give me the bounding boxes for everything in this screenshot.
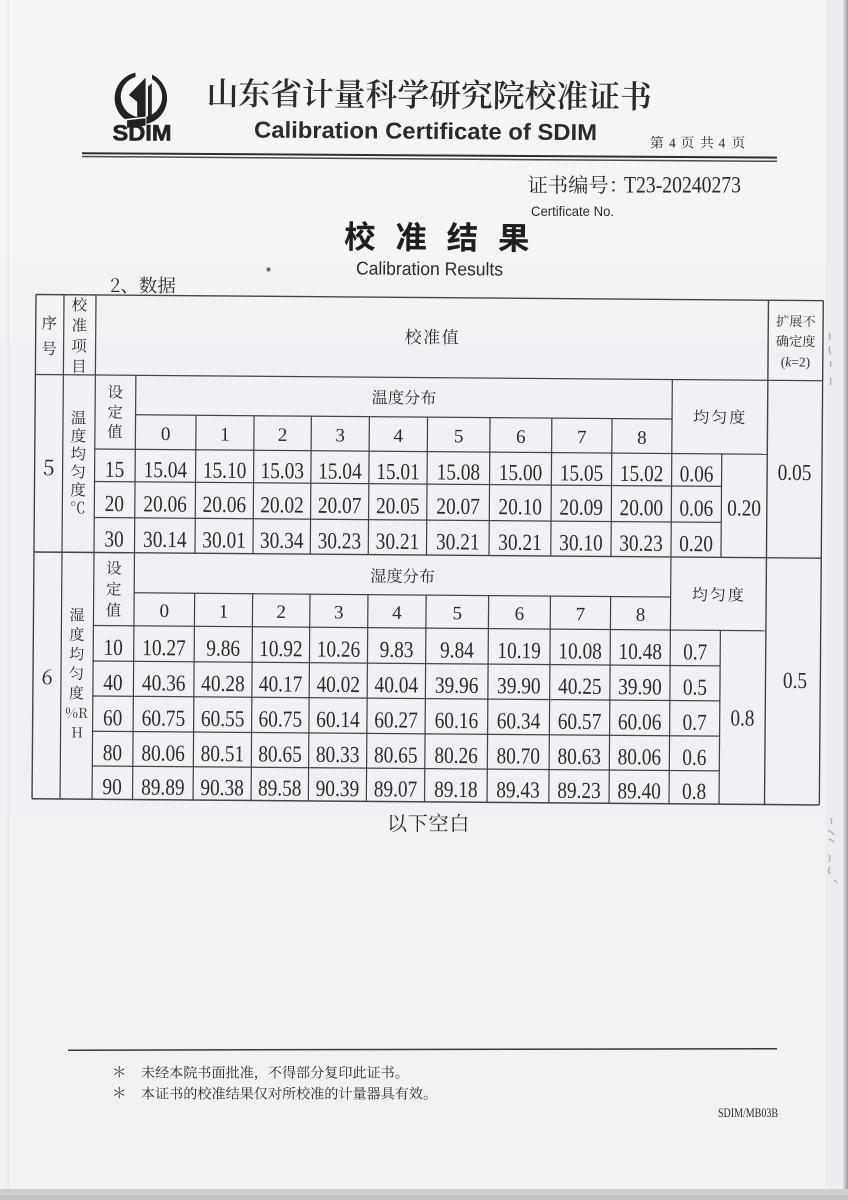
svg-text:60: 60 xyxy=(103,705,122,730)
svg-text:80.63: 80.63 xyxy=(557,744,601,769)
svg-text:0.6: 0.6 xyxy=(682,745,706,770)
svg-text:3: 3 xyxy=(334,602,344,623)
svg-text:30.23: 30.23 xyxy=(318,528,362,553)
svg-text:9.86: 9.86 xyxy=(206,636,240,661)
svg-text:0.7: 0.7 xyxy=(683,710,707,735)
svg-text:20: 20 xyxy=(105,491,124,516)
svg-text:1: 1 xyxy=(219,601,229,622)
svg-text:20.09: 20.09 xyxy=(559,495,603,520)
svg-text:SDIM: SDIM xyxy=(113,121,172,146)
svg-text:89.89: 89.89 xyxy=(141,774,185,799)
svg-text:10.26: 10.26 xyxy=(317,636,361,661)
svg-text:4: 4 xyxy=(393,426,403,447)
svg-text:60.14: 60.14 xyxy=(316,707,360,732)
svg-text:30.21: 30.21 xyxy=(436,529,480,554)
svg-text:Certificate No.: Certificate No. xyxy=(531,204,614,219)
svg-text:30.14: 30.14 xyxy=(143,527,187,552)
svg-text:15.02: 15.02 xyxy=(620,461,664,486)
svg-text:8: 8 xyxy=(636,605,646,626)
svg-text:Calibration Certificate of SDI: Calibration Certificate of SDIM xyxy=(254,117,597,146)
svg-text:Calibration Results: Calibration Results xyxy=(356,258,503,280)
svg-text:60.75: 60.75 xyxy=(142,706,186,731)
svg-text:20.07: 20.07 xyxy=(318,493,362,518)
svg-text:SDIM/MB03B: SDIM/MB03B xyxy=(718,1105,778,1120)
svg-text:89.58: 89.58 xyxy=(258,775,302,800)
svg-text:20.06: 20.06 xyxy=(143,491,187,516)
svg-text:80.06: 80.06 xyxy=(141,741,185,766)
svg-text:90.38: 90.38 xyxy=(200,775,244,800)
svg-text:90: 90 xyxy=(102,774,121,799)
svg-text:5: 5 xyxy=(454,426,464,447)
svg-text:15.04: 15.04 xyxy=(144,457,188,482)
svg-text:80.70: 80.70 xyxy=(496,743,540,768)
svg-text:8: 8 xyxy=(637,428,647,449)
svg-text:39.90: 39.90 xyxy=(497,673,541,698)
svg-text:40: 40 xyxy=(103,670,122,695)
svg-text:60.06: 60.06 xyxy=(618,709,662,734)
svg-text:0: 0 xyxy=(161,424,171,445)
svg-text:3: 3 xyxy=(335,425,345,446)
svg-text:40.17: 40.17 xyxy=(259,671,303,696)
svg-text:30.01: 30.01 xyxy=(202,527,246,552)
svg-text:15.05: 15.05 xyxy=(560,460,604,485)
svg-text:4: 4 xyxy=(392,603,402,624)
svg-text:89.43: 89.43 xyxy=(496,777,540,802)
svg-text:40.36: 40.36 xyxy=(142,670,186,695)
svg-text:20.00: 20.00 xyxy=(620,495,664,520)
svg-text:0.20: 0.20 xyxy=(679,531,713,556)
svg-text:80: 80 xyxy=(103,740,122,765)
svg-text:7: 7 xyxy=(577,427,587,448)
svg-text:T23-20240273: T23-20240273 xyxy=(624,173,741,198)
svg-text:30.21: 30.21 xyxy=(498,530,542,555)
svg-text:80.26: 80.26 xyxy=(434,743,478,768)
svg-text:60.55: 60.55 xyxy=(201,706,245,731)
svg-text:15.10: 15.10 xyxy=(203,458,247,483)
svg-text:80.33: 80.33 xyxy=(316,742,360,767)
svg-text:20.10: 20.10 xyxy=(498,494,542,519)
svg-text:0.5: 0.5 xyxy=(683,675,707,700)
svg-text:39.90: 39.90 xyxy=(618,674,662,699)
svg-text:30: 30 xyxy=(104,527,123,552)
svg-text:80.65: 80.65 xyxy=(374,742,418,767)
svg-text:30.23: 30.23 xyxy=(619,531,663,556)
svg-text:90.39: 90.39 xyxy=(316,776,360,801)
svg-text:30.21: 30.21 xyxy=(376,529,420,554)
svg-text:(k=2): (k=2) xyxy=(781,354,810,369)
svg-text:0.7: 0.7 xyxy=(683,639,707,664)
svg-text:80.65: 80.65 xyxy=(258,741,302,766)
svg-text:10.92: 10.92 xyxy=(259,636,303,661)
svg-text:2: 2 xyxy=(278,425,288,446)
svg-text:89.07: 89.07 xyxy=(374,776,418,801)
svg-text:80.06: 80.06 xyxy=(618,744,662,769)
svg-text:7: 7 xyxy=(576,604,586,625)
svg-text:1: 1 xyxy=(220,424,230,445)
svg-text:40.28: 40.28 xyxy=(201,671,245,696)
svg-text:60.34: 60.34 xyxy=(497,708,541,733)
svg-text:40.02: 40.02 xyxy=(316,672,360,697)
svg-text:0: 0 xyxy=(159,601,169,622)
svg-text:6: 6 xyxy=(516,427,526,448)
svg-text:0.06: 0.06 xyxy=(680,461,714,486)
svg-text:15.04: 15.04 xyxy=(318,458,362,483)
svg-text:4: 4 xyxy=(719,136,726,151)
svg-text:40.25: 40.25 xyxy=(558,674,602,699)
svg-text:60.57: 60.57 xyxy=(558,709,602,734)
svg-text:60.27: 60.27 xyxy=(374,707,418,732)
svg-text:15.01: 15.01 xyxy=(376,459,420,484)
svg-text:30.34: 30.34 xyxy=(260,528,304,553)
svg-text:9.84: 9.84 xyxy=(440,637,474,662)
svg-text:10.08: 10.08 xyxy=(558,638,602,663)
svg-text:80.51: 80.51 xyxy=(201,741,245,766)
svg-text:15: 15 xyxy=(105,457,124,482)
svg-text:9.83: 9.83 xyxy=(380,637,414,662)
svg-text:0.06: 0.06 xyxy=(679,496,713,521)
svg-text:6: 6 xyxy=(515,604,525,625)
svg-text:0.20: 0.20 xyxy=(727,495,761,520)
svg-text:20.07: 20.07 xyxy=(436,494,480,519)
svg-text:10: 10 xyxy=(103,635,122,660)
svg-text:60.75: 60.75 xyxy=(258,706,302,731)
svg-text:15.03: 15.03 xyxy=(260,458,304,483)
svg-text:40.04: 40.04 xyxy=(375,672,419,697)
svg-text:20.05: 20.05 xyxy=(376,493,420,518)
svg-text:20.02: 20.02 xyxy=(260,492,304,517)
svg-text:0.8: 0.8 xyxy=(730,705,754,730)
svg-text:89.23: 89.23 xyxy=(557,778,601,803)
svg-text:2: 2 xyxy=(276,602,286,623)
svg-text:0.05: 0.05 xyxy=(778,460,812,485)
svg-text:30.10: 30.10 xyxy=(559,530,603,555)
svg-text:4: 4 xyxy=(669,136,676,151)
svg-text:20.06: 20.06 xyxy=(203,492,247,517)
svg-text:0.5: 0.5 xyxy=(783,668,807,693)
svg-text:39.96: 39.96 xyxy=(435,673,479,698)
svg-text:10.48: 10.48 xyxy=(618,639,662,664)
svg-text:10.27: 10.27 xyxy=(142,635,186,660)
svg-text:5: 5 xyxy=(452,603,462,624)
svg-text:89.40: 89.40 xyxy=(617,778,661,803)
svg-text:89.18: 89.18 xyxy=(434,777,478,802)
svg-text:15.08: 15.08 xyxy=(437,459,481,484)
svg-text:60.16: 60.16 xyxy=(435,708,479,733)
svg-text:10.19: 10.19 xyxy=(497,638,541,663)
svg-text:15.00: 15.00 xyxy=(499,460,543,485)
svg-text:0.8: 0.8 xyxy=(682,779,706,804)
